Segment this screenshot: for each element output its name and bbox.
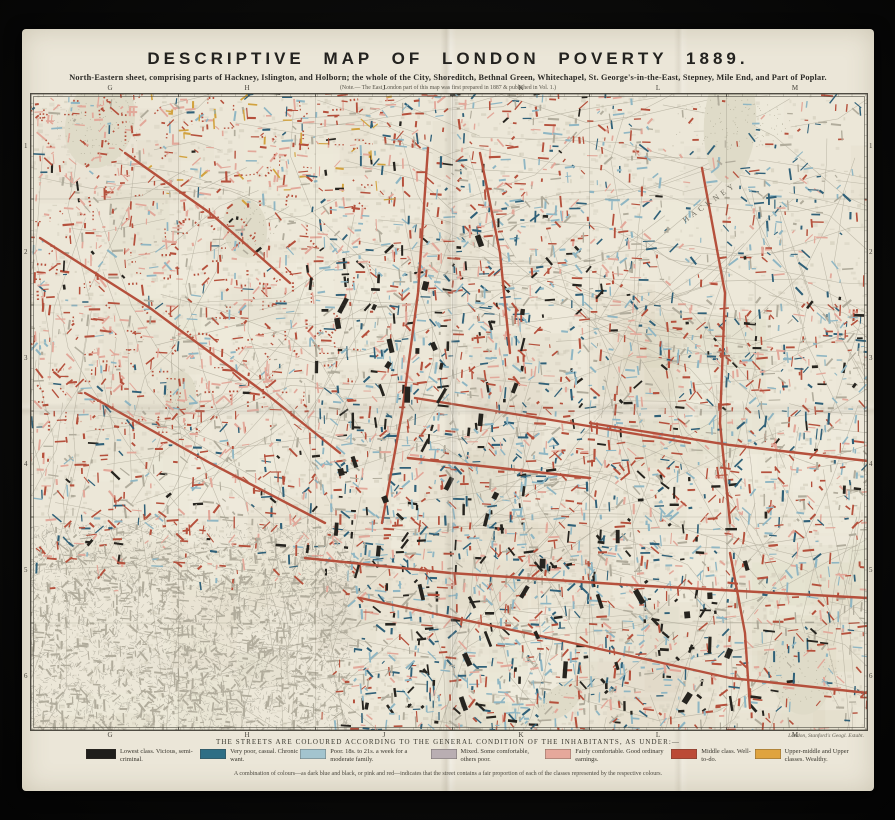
legend-swatch-pink [545,749,571,759]
grid-number-right-4: 4 [869,460,873,468]
grid-number-left-3: 3 [24,354,28,362]
poverty-map-canvas [30,93,868,731]
map-frame [30,93,868,731]
map-subtitle: North-Eastern sheet, comprising parts of… [22,73,874,82]
legend-label: Very poor, casual. Chronic want. [230,748,300,763]
grid-number-left-1: 1 [24,142,28,150]
legend-label: Lowest class. Vicious, semi-criminal. [120,748,200,763]
legend-item-mixed: Mixed. Some comfortable, others poor. [431,748,546,763]
legend-item-upper-class: Upper-middle and Upper classes. Wealthy. [755,748,862,763]
grid-letter-top-j: J [383,84,386,92]
grid-number-left-5: 5 [24,566,28,574]
grid-letter-top-h: H [244,84,249,92]
legend-item-poor: Poor. 18s. to 21s. a week for a moderate… [300,748,430,763]
grid-letter-top-l: L [656,84,660,92]
legend-item-very-poor: Very poor, casual. Chronic want. [200,748,300,763]
legend: Lowest class. Vicious, semi-criminal. Ve… [86,748,862,763]
legend-swatch-light-blue [300,749,326,759]
map-title: DESCRIPTIVE MAP OF LONDON POVERTY 1889. [22,49,874,69]
grid-letter-top-m: M [792,84,798,92]
legend-label: Middle class. Well-to-do. [701,748,754,763]
legend-swatch-dark-blue [200,749,226,759]
grid-number-right-6: 6 [869,672,873,680]
legend-label: Upper-middle and Upper classes. Wealthy. [785,748,862,763]
grid-number-right-3: 3 [869,354,873,362]
grid-number-right-5: 5 [869,566,873,574]
legend-swatch-red [671,749,697,759]
legend-label: Poor. 18s. to 21s. a week for a moderate… [330,748,430,763]
grid-number-left-6: 6 [24,672,28,680]
legend-item-middle-class: Middle class. Well-to-do. [671,748,754,763]
map-note: (Note.— The East London part of this map… [22,85,874,91]
legend-label: Mixed. Some comfortable, others poor. [461,748,546,763]
legend-footnote: A combination of colours—as dark blue an… [22,771,874,777]
legend-swatch-gold [755,749,781,759]
legend-swatch-black [86,749,116,759]
legend-heading: THE STREETS ARE COLOURED ACCORDING TO TH… [22,738,874,746]
grid-letter-top-g: G [107,84,112,92]
grid-letter-top-k: K [518,84,523,92]
grid-number-left-4: 4 [24,460,28,468]
grid-number-right-1: 1 [869,142,873,150]
legend-label: Fairly comfortable. Good ordinary earnin… [575,748,671,763]
photo-background: DESCRIPTIVE MAP OF LONDON POVERTY 1889. … [0,0,895,820]
grid-number-left-2: 2 [24,248,28,256]
legend-swatch-purple-grey [431,749,457,759]
map-sheet: DESCRIPTIVE MAP OF LONDON POVERTY 1889. … [22,29,874,791]
legend-item-fairly-comfortable: Fairly comfortable. Good ordinary earnin… [545,748,671,763]
legend-item-lowest-class: Lowest class. Vicious, semi-criminal. [86,748,200,763]
grid-number-right-2: 2 [869,248,873,256]
